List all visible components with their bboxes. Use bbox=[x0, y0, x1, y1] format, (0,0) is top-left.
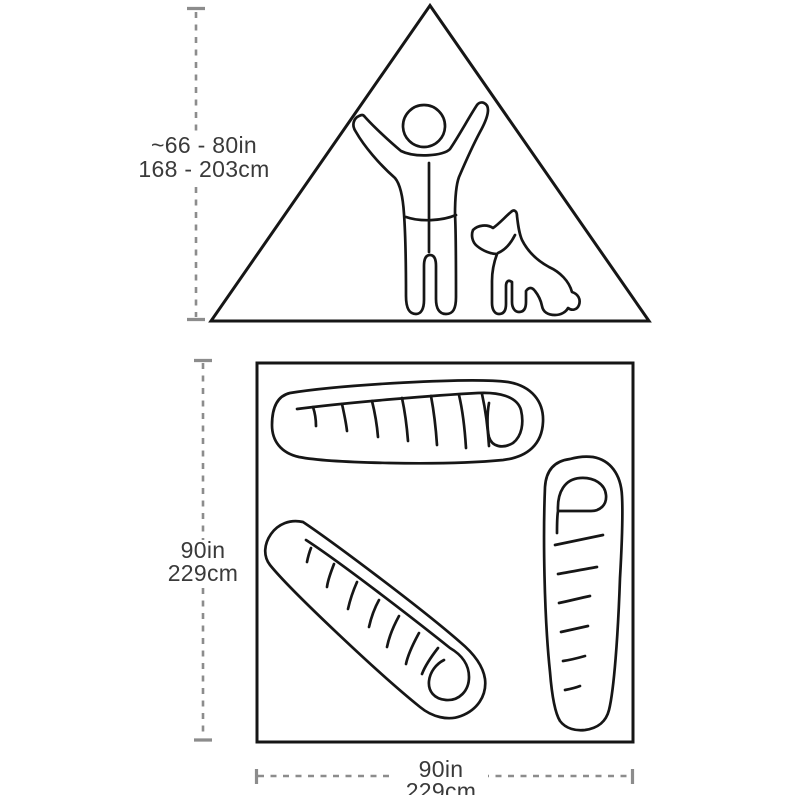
tent-floor-plan: 90in 229cm 90in 229cm bbox=[160, 361, 633, 795]
width-dimension: 90in 229cm bbox=[257, 756, 633, 795]
depth-label-line2: 229cm bbox=[168, 560, 239, 586]
tent-dimensions-diagram: ~66 - 80in 168 - 203cm bbox=[0, 0, 795, 795]
width-label-line2: 229cm bbox=[406, 778, 477, 795]
height-label-line2: 168 - 203cm bbox=[138, 156, 269, 182]
height-label-line1: ~66 - 80in bbox=[151, 132, 257, 158]
diagram-svg: ~66 - 80in 168 - 203cm bbox=[0, 0, 795, 795]
tent-profile-view: ~66 - 80in 168 - 203cm bbox=[138, 6, 649, 322]
floor-outline bbox=[257, 363, 633, 742]
depth-dimension: 90in 229cm bbox=[160, 361, 246, 741]
